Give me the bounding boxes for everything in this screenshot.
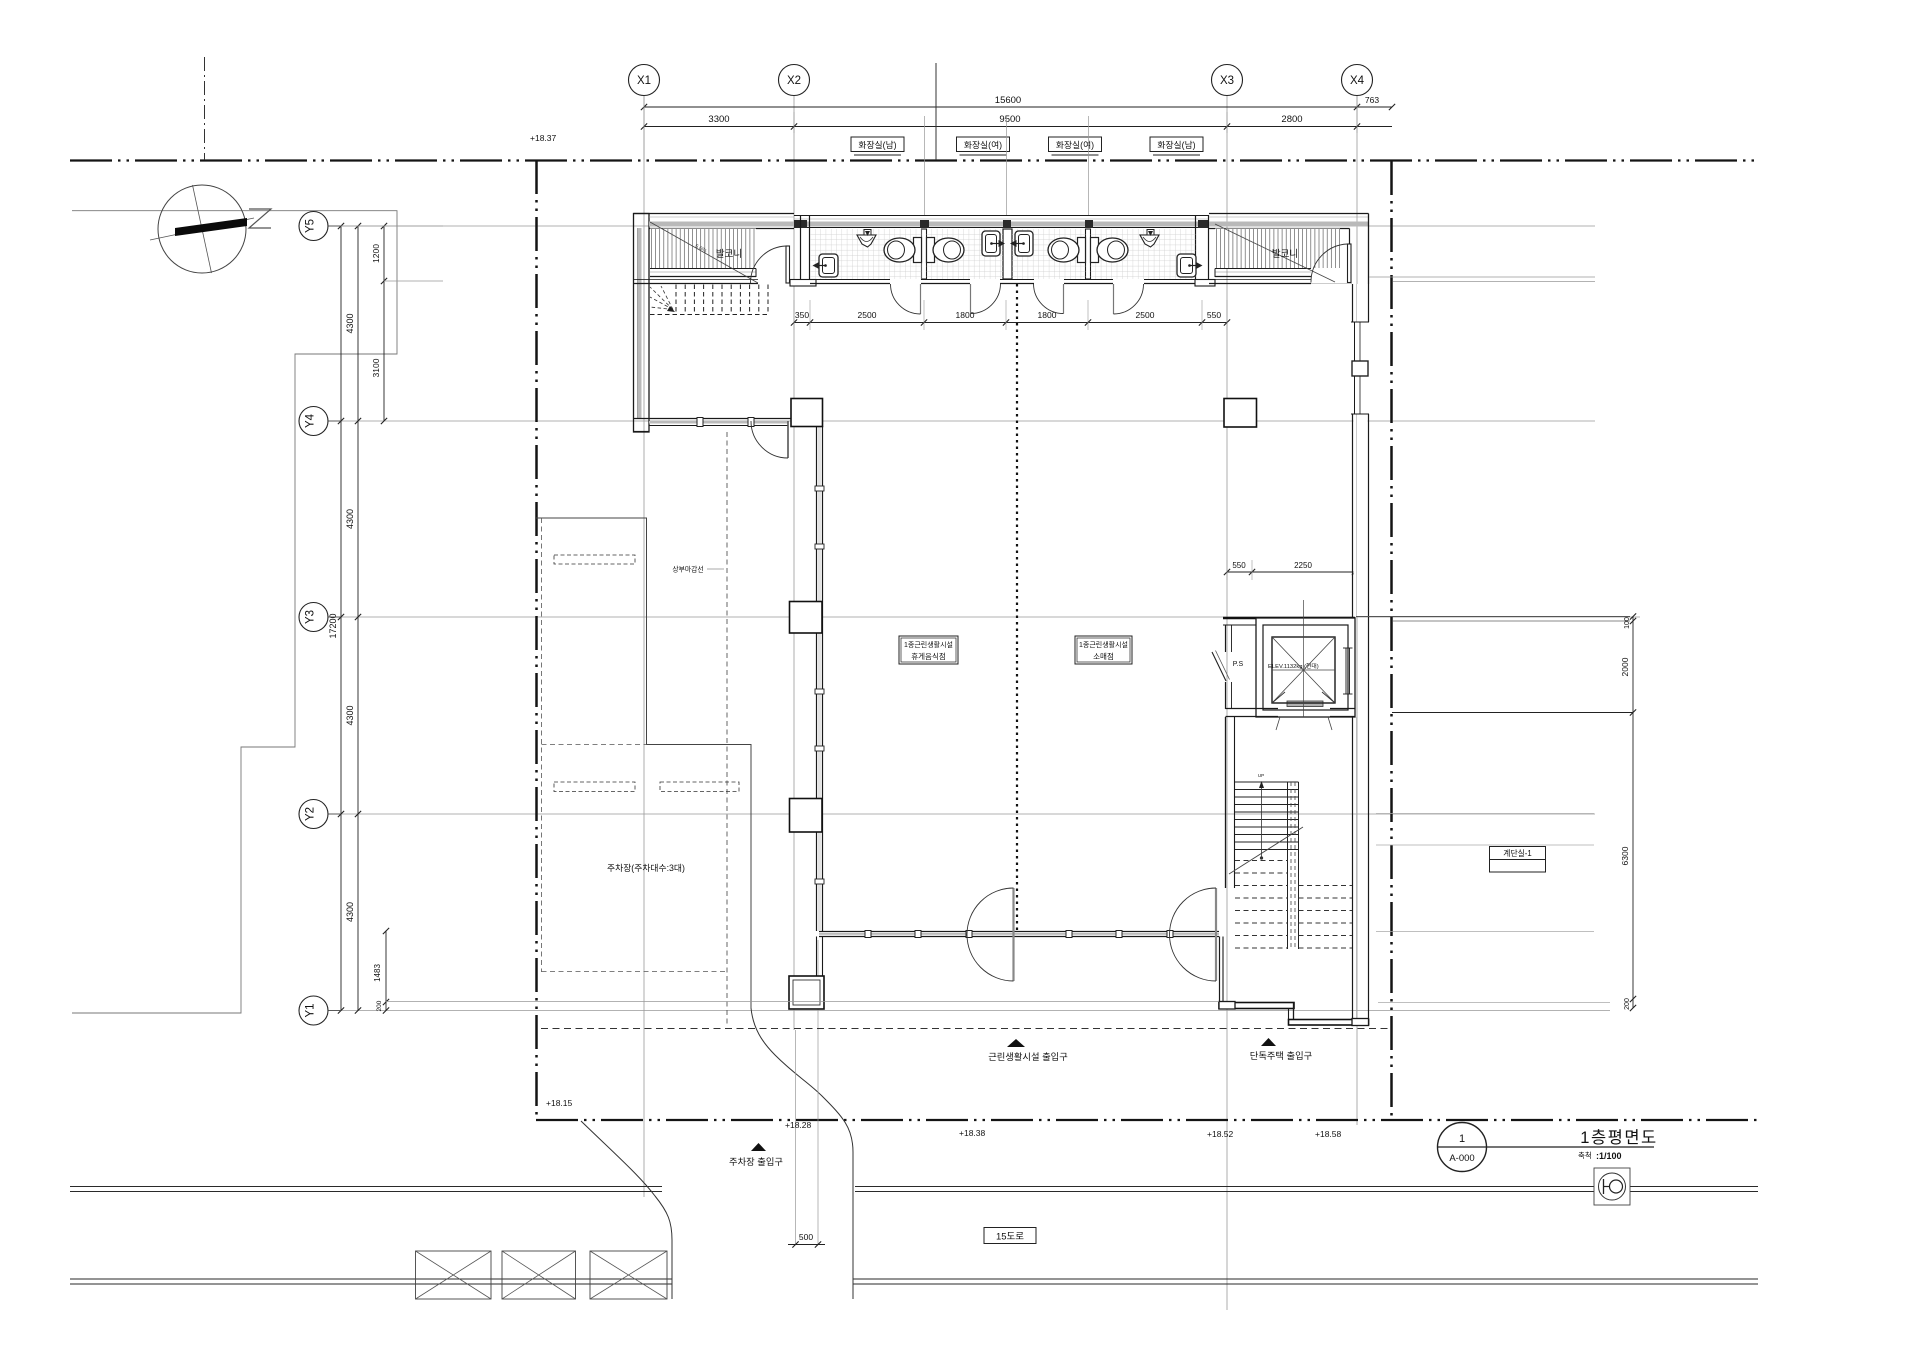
svg-text:화장실(여): 화장실(여) <box>964 139 1002 150</box>
svg-text:15도로: 15도로 <box>996 1232 1024 1243</box>
svg-text:550: 550 <box>1207 310 1221 320</box>
svg-text:4300: 4300 <box>345 509 355 529</box>
svg-text:근린생활시설 출입구: 근린생활시설 출입구 <box>988 1051 1068 1062</box>
svg-text:3300: 3300 <box>708 114 729 125</box>
svg-text:550: 550 <box>1232 561 1246 570</box>
svg-text:축척: 축척 <box>1578 1151 1592 1160</box>
svg-text:3100: 3100 <box>371 358 381 377</box>
svg-text:P.S: P.S <box>1233 661 1244 668</box>
svg-text:소매점: 소매점 <box>1093 651 1114 661</box>
svg-text:+18.38: +18.38 <box>959 1128 986 1138</box>
svg-text:주차장 출입구: 주차장 출입구 <box>729 1156 783 1167</box>
svg-text:15600: 15600 <box>995 95 1021 106</box>
svg-text:2500: 2500 <box>1136 310 1155 320</box>
svg-text:Y3: Y3 <box>305 610 317 624</box>
svg-text:1: 1 <box>1459 1133 1465 1145</box>
svg-text:X2: X2 <box>787 75 801 87</box>
svg-text:X4: X4 <box>1350 75 1365 87</box>
svg-text:1층평면도: 1층평면도 <box>1580 1128 1657 1147</box>
svg-text:500: 500 <box>799 1232 813 1242</box>
svg-text:2500: 2500 <box>858 310 877 320</box>
svg-text:+18.52: +18.52 <box>1207 1129 1234 1139</box>
svg-text:+18.28: +18.28 <box>785 1120 812 1130</box>
svg-text:Y4: Y4 <box>305 413 317 428</box>
svg-text:UP: UP <box>1258 773 1264 778</box>
svg-text:200: 200 <box>376 1000 383 1011</box>
svg-text:+18.58: +18.58 <box>1315 1129 1342 1139</box>
svg-text:Y2: Y2 <box>305 807 317 821</box>
svg-text:주차장(주차대수:3대): 주차장(주차대수:3대) <box>607 862 685 873</box>
svg-text:2800: 2800 <box>1281 114 1302 125</box>
svg-text:화장실(남): 화장실(남) <box>858 140 896 150</box>
svg-text:200: 200 <box>1624 998 1631 1010</box>
svg-text:발코니: 발코니 <box>716 249 742 260</box>
svg-text:상부마감선: 상부마감선 <box>672 565 703 574</box>
svg-text:1200: 1200 <box>371 244 381 263</box>
svg-text:1483: 1483 <box>373 964 382 982</box>
svg-text:Y5: Y5 <box>305 219 317 233</box>
svg-text:9500: 9500 <box>999 114 1020 125</box>
svg-text::1/100: :1/100 <box>1596 1151 1622 1161</box>
svg-text:1종근린생활시설: 1종근린생활시설 <box>904 640 953 649</box>
svg-text:휴게음식점: 휴게음식점 <box>911 651 946 661</box>
svg-text:+18.37: +18.37 <box>530 133 557 143</box>
svg-text:Y1: Y1 <box>305 1003 317 1017</box>
svg-text:X1: X1 <box>637 75 651 87</box>
svg-text:+18.15: +18.15 <box>546 1098 573 1108</box>
svg-text:100: 100 <box>1624 617 1631 629</box>
svg-text:단독주택 출입구: 단독주택 출입구 <box>1250 1050 1313 1061</box>
svg-text:발코니: 발코니 <box>1272 249 1298 260</box>
svg-text:2250: 2250 <box>1294 561 1312 570</box>
svg-text:763: 763 <box>1365 95 1379 105</box>
svg-text:계단실-1: 계단실-1 <box>1503 848 1531 858</box>
svg-text:ELEV.1132kg (현대): ELEV.1132kg (현대) <box>1268 662 1319 670</box>
svg-text:A-000: A-000 <box>1449 1153 1474 1164</box>
svg-text:화장실(남): 화장실(남) <box>1157 140 1195 150</box>
svg-text:4300: 4300 <box>345 313 355 333</box>
svg-text:6300: 6300 <box>1620 846 1630 865</box>
svg-text:1800: 1800 <box>956 310 975 320</box>
svg-text:X3: X3 <box>1220 75 1234 87</box>
svg-text:1800: 1800 <box>1038 310 1057 320</box>
svg-text:4300: 4300 <box>345 902 355 922</box>
svg-text:1종근린생활시설: 1종근린생활시설 <box>1079 640 1128 649</box>
svg-text:2000: 2000 <box>1620 657 1630 676</box>
svg-text:350: 350 <box>795 310 809 320</box>
svg-text:4300: 4300 <box>345 705 355 725</box>
